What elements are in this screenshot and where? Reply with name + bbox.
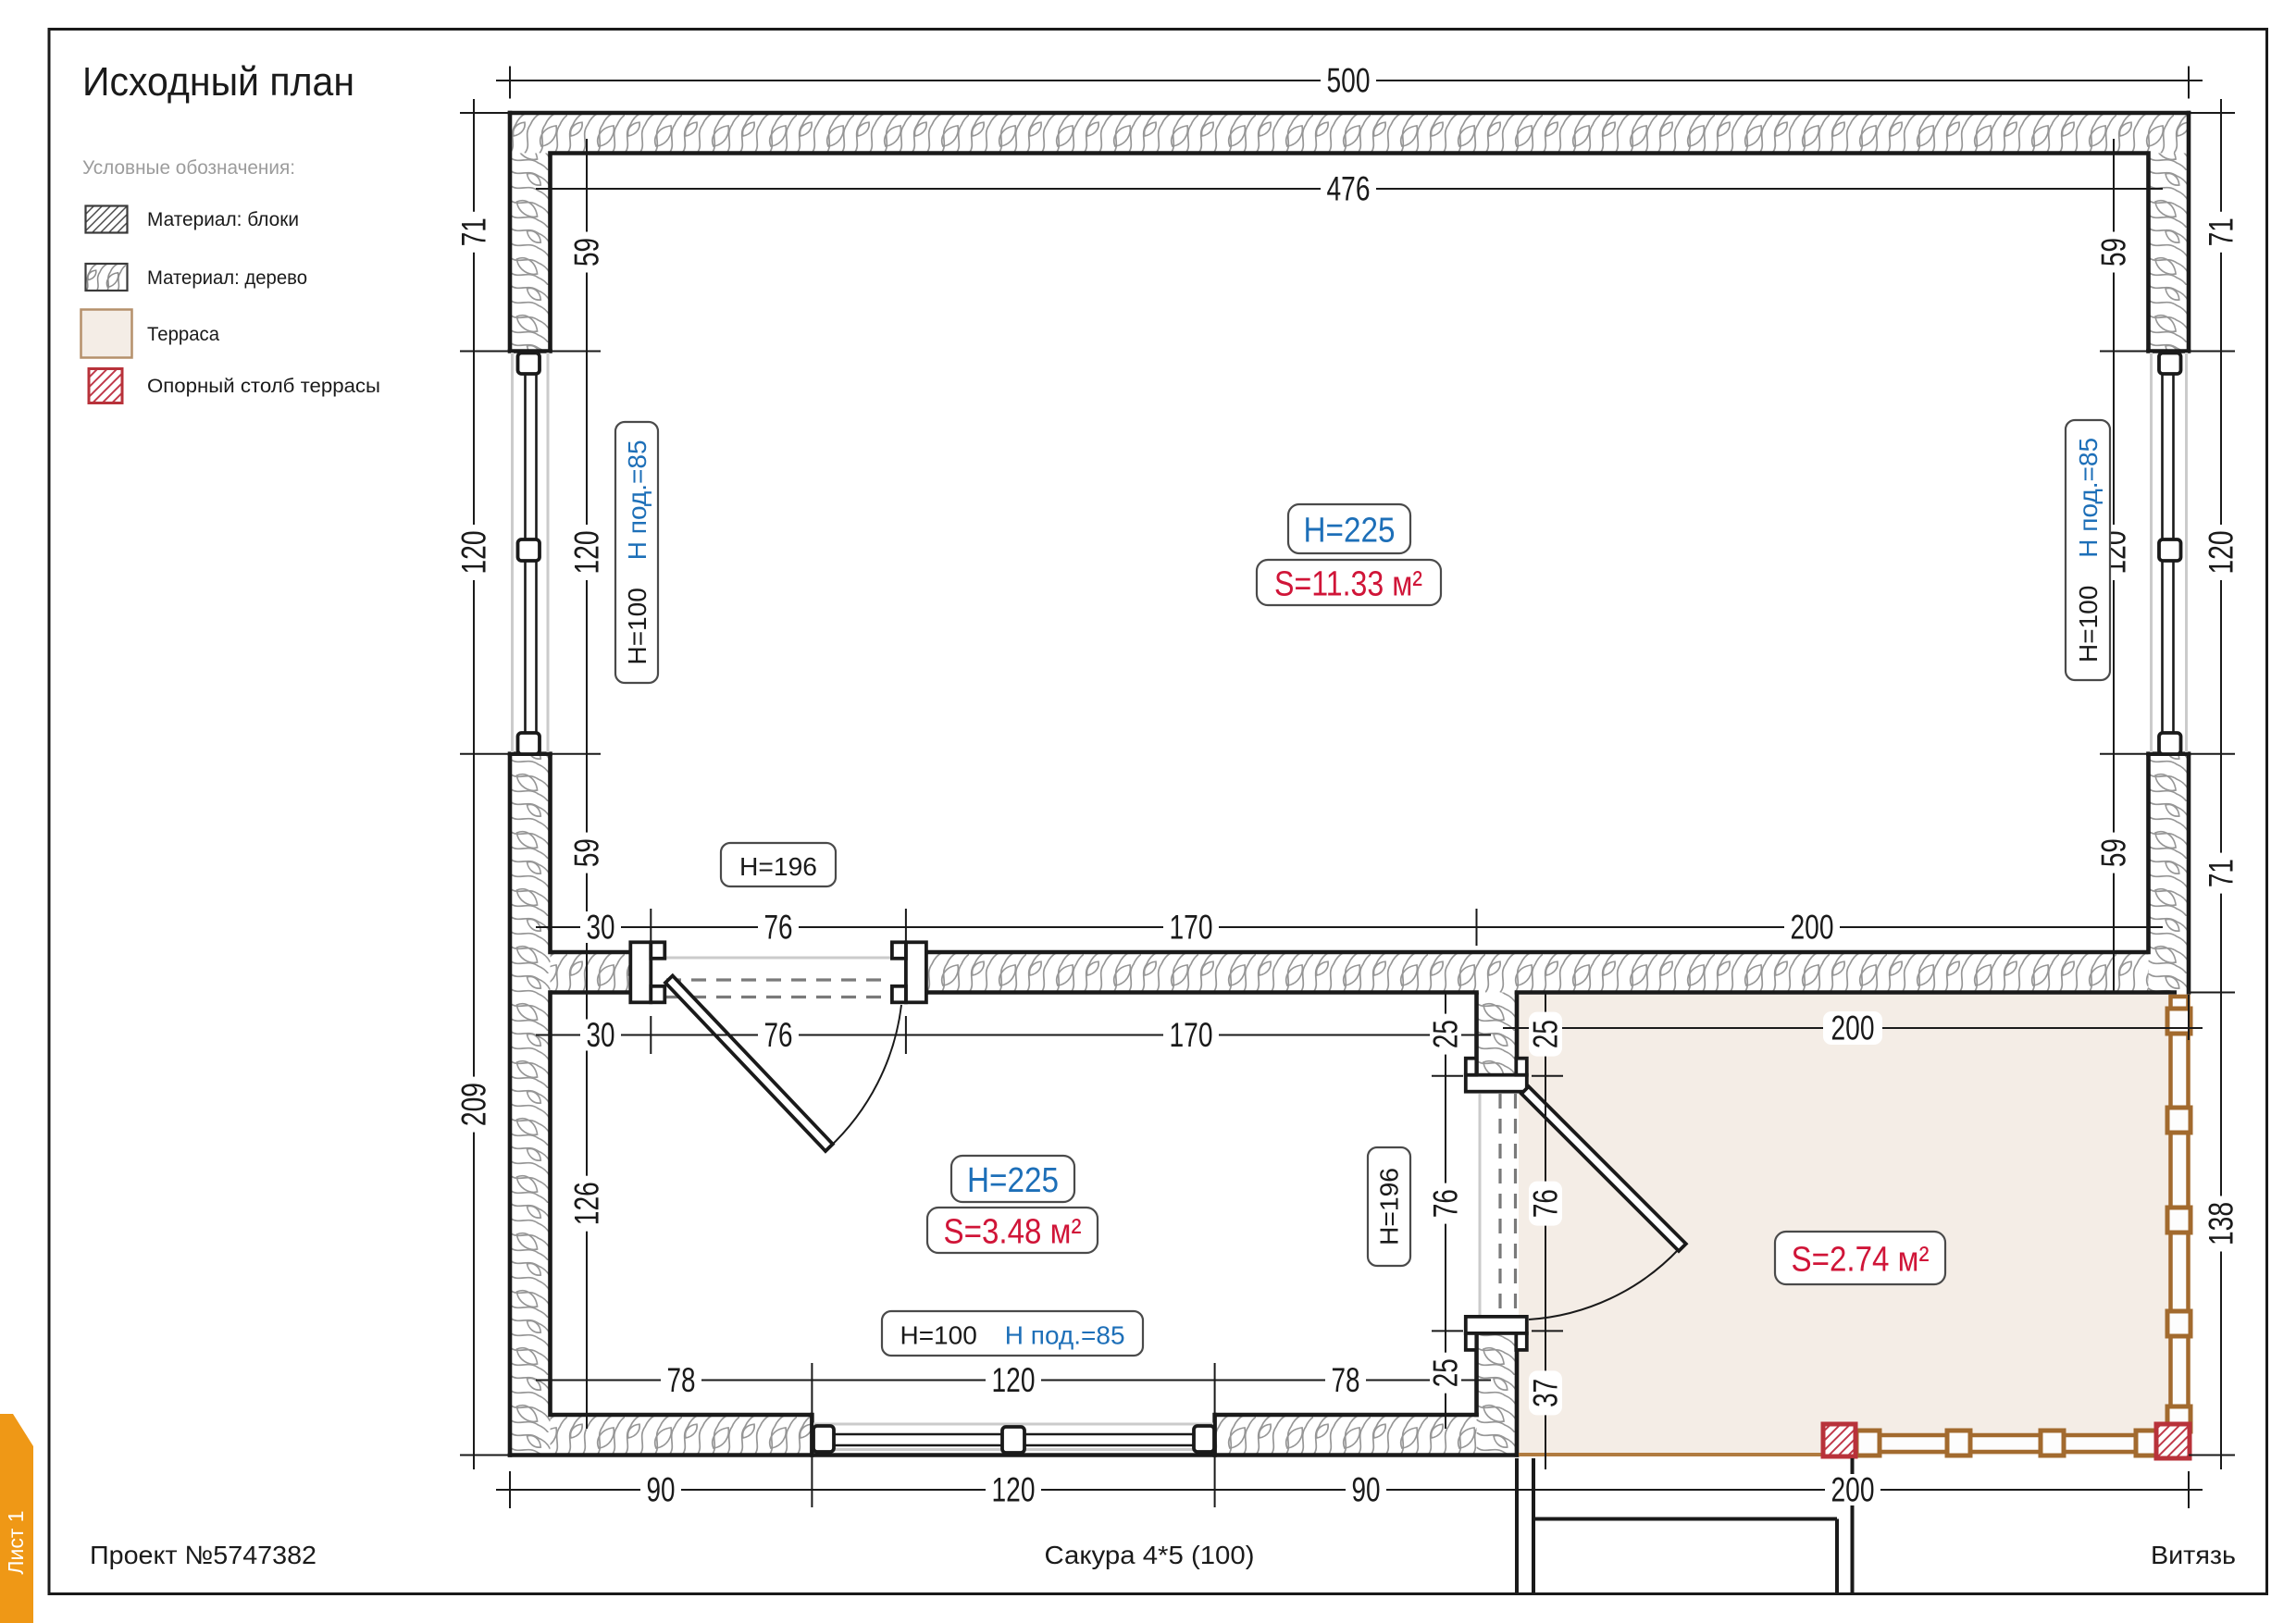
svg-text:H=100Н под.=85: H=100Н под.=85	[900, 1320, 1124, 1349]
svg-text:126: 126	[568, 1182, 606, 1225]
svg-text:120: 120	[568, 531, 606, 575]
svg-text:90: 90	[647, 1471, 676, 1509]
svg-text:76: 76	[764, 909, 793, 947]
svg-text:Материал: дерево: Материал: дерево	[147, 267, 307, 289]
svg-text:78: 78	[1332, 1361, 1360, 1399]
svg-text:138: 138	[2203, 1202, 2240, 1245]
svg-text:76: 76	[1527, 1189, 1565, 1218]
svg-text:76: 76	[1427, 1189, 1465, 1218]
svg-text:71: 71	[455, 217, 493, 246]
svg-text:76: 76	[764, 1016, 793, 1054]
svg-text:Сакура 4*5 (100): Сакура 4*5 (100)	[1045, 1541, 1255, 1569]
svg-text:59: 59	[2095, 238, 2133, 266]
svg-text:Условные обозначения:: Условные обозначения:	[82, 157, 295, 179]
svg-text:S=2.74 м²: S=2.74 м²	[1792, 1241, 1930, 1280]
svg-text:H=196: H=196	[1375, 1168, 1404, 1245]
svg-text:H=100Н под.=85: H=100Н под.=85	[623, 440, 652, 664]
svg-text:71: 71	[2203, 859, 2240, 887]
svg-text:476: 476	[1327, 170, 1371, 208]
svg-text:H=196: H=196	[739, 852, 817, 881]
svg-text:25: 25	[1427, 1358, 1465, 1387]
svg-text:170: 170	[1170, 909, 1213, 947]
svg-text:71: 71	[2203, 217, 2240, 246]
svg-text:25: 25	[1527, 1020, 1565, 1048]
svg-text:Опорный столб террасы: Опорный столб террасы	[147, 376, 380, 397]
svg-text:120: 120	[992, 1471, 1036, 1509]
svg-text:S=11.33 м²: S=11.33 м²	[1274, 565, 1422, 604]
svg-text:90: 90	[1352, 1471, 1381, 1509]
svg-text:S=3.48 м²: S=3.48 м²	[944, 1213, 1082, 1252]
svg-text:78: 78	[667, 1361, 696, 1399]
svg-text:Исходный план: Исходный план	[82, 59, 354, 105]
svg-text:Лист 1: Лист 1	[4, 1510, 28, 1574]
svg-text:Терраса: Терраса	[147, 324, 219, 345]
svg-text:120: 120	[992, 1361, 1036, 1399]
svg-text:H=225: H=225	[1304, 512, 1396, 551]
svg-text:H=225: H=225	[967, 1161, 1059, 1200]
svg-text:Витязь: Витязь	[2151, 1541, 2236, 1569]
svg-text:120: 120	[455, 531, 493, 575]
svg-text:37: 37	[1527, 1379, 1565, 1407]
svg-text:Проект №5747382: Проект №5747382	[90, 1541, 316, 1569]
svg-text:H=100Н под.=85: H=100Н под.=85	[2074, 438, 2103, 663]
svg-text:30: 30	[587, 1016, 615, 1054]
svg-text:120: 120	[2203, 531, 2240, 575]
svg-text:200: 200	[1831, 1471, 1875, 1509]
svg-text:25: 25	[1427, 1020, 1465, 1048]
svg-text:170: 170	[1170, 1016, 1213, 1054]
svg-text:59: 59	[568, 838, 606, 867]
svg-text:59: 59	[568, 238, 606, 266]
svg-text:30: 30	[587, 909, 615, 947]
svg-text:59: 59	[2095, 838, 2133, 867]
svg-text:200: 200	[1791, 909, 1834, 947]
svg-text:500: 500	[1327, 62, 1371, 100]
svg-text:Материал: блоки: Материал: блоки	[147, 209, 299, 230]
svg-text:200: 200	[1831, 1010, 1875, 1047]
svg-text:209: 209	[455, 1083, 493, 1126]
